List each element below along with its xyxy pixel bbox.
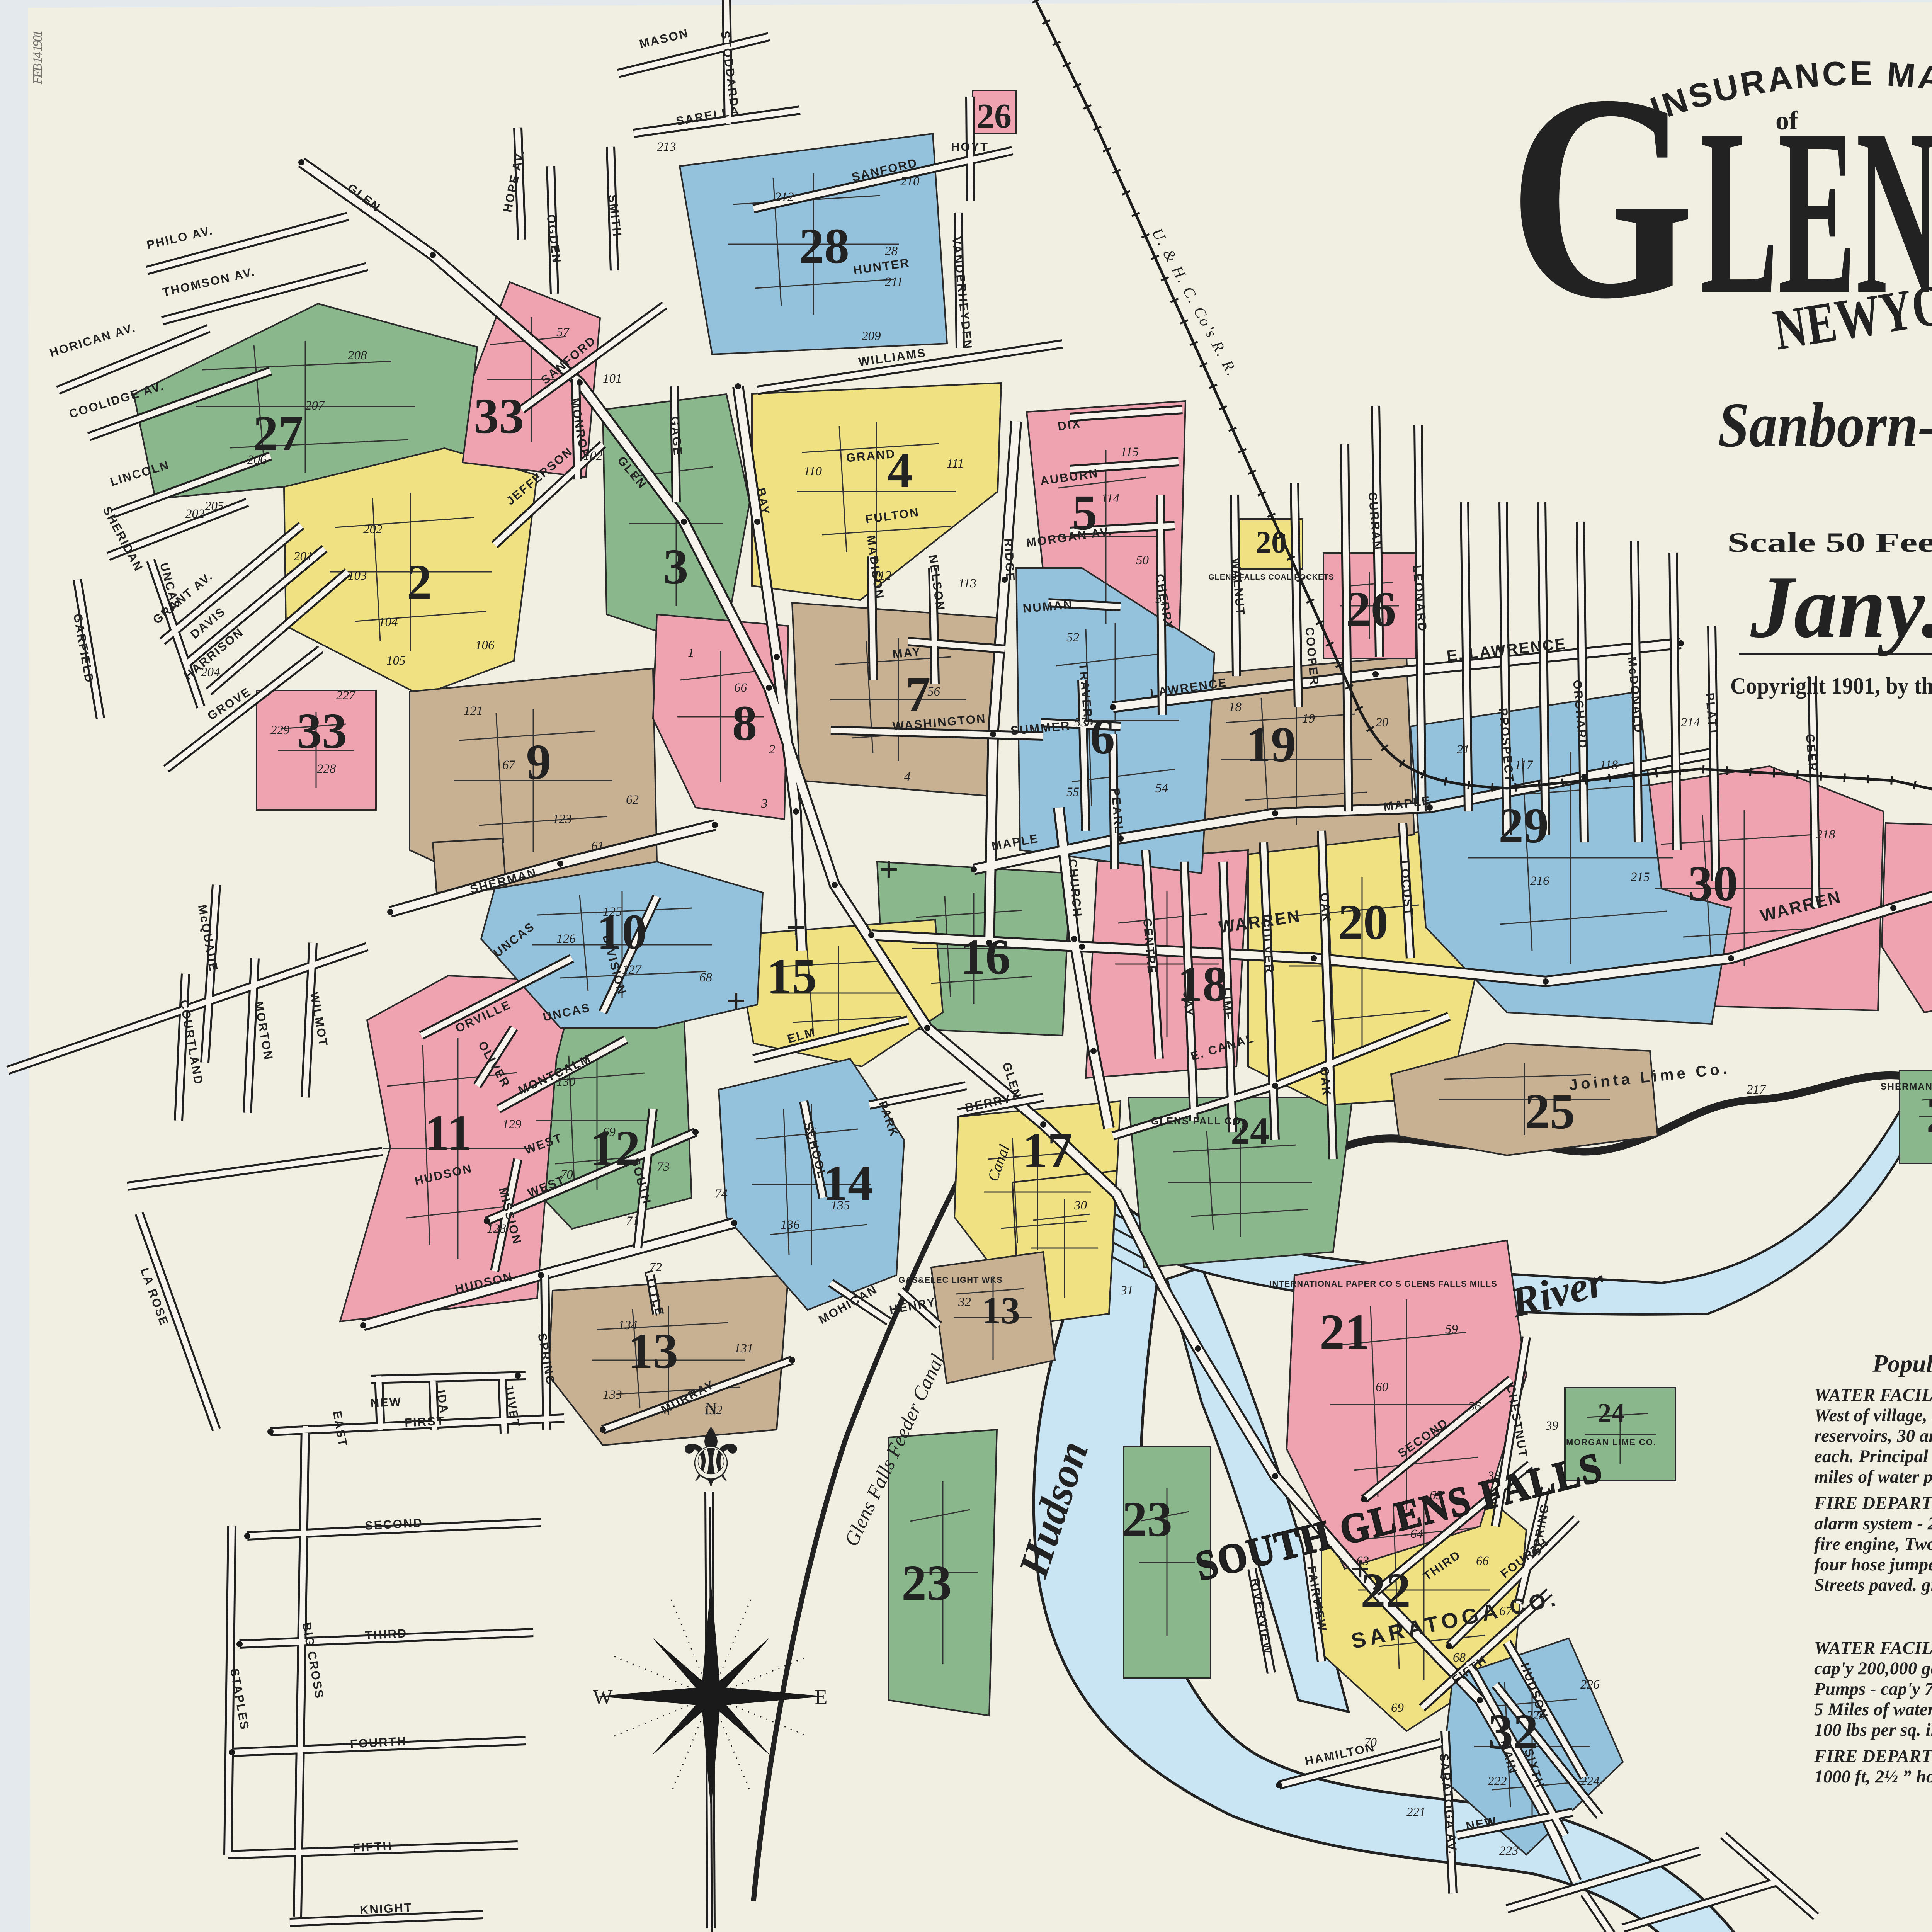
svg-text:Copyright 1901, by the Sanborn: Copyright 1901, by the Sanborn-Perris Ma… xyxy=(1730,673,1932,699)
svg-text:Jany.1901: Jany.1901 xyxy=(1750,558,1932,656)
svg-text:16: 16 xyxy=(960,929,1010,985)
svg-text:West of village, 254 ft. above: West of village, 254 ft. above Glen & Wa… xyxy=(1814,1405,1932,1425)
svg-text:SHERMAN LIME CO.: SHERMAN LIME CO. xyxy=(1881,1082,1932,1092)
svg-text:19: 19 xyxy=(1246,717,1296,772)
svg-text:125: 125 xyxy=(603,905,622,919)
svg-text:28: 28 xyxy=(799,218,849,274)
svg-text:223: 223 xyxy=(1499,1844,1519,1858)
svg-text:15: 15 xyxy=(767,949,817,1004)
svg-text:KNIGHT: KNIGHT xyxy=(359,1900,413,1917)
svg-text:WATER FACILITIES. Water suppl: WATER FACILITIES. Water supply from Huds… xyxy=(1814,1638,1932,1658)
svg-text:60: 60 xyxy=(1376,1380,1389,1394)
svg-text:130: 130 xyxy=(556,1075,576,1089)
svg-text:Scale 50 Feet to an Inch: Scale 50 Feet to an Inch xyxy=(1727,527,1932,558)
svg-text:215: 215 xyxy=(1631,870,1650,884)
svg-text:204: 204 xyxy=(201,665,220,679)
svg-text:31: 31 xyxy=(1120,1284,1133,1298)
svg-text:23: 23 xyxy=(901,1555,952,1611)
svg-text:INTERNATIONAL PAPER CO S GLENS: INTERNATIONAL PAPER CO S GLENS FALLS MIL… xyxy=(1269,1279,1497,1289)
svg-text:MAY: MAY xyxy=(892,645,922,661)
svg-text:9: 9 xyxy=(526,734,551,790)
svg-text:224: 224 xyxy=(1580,1774,1600,1788)
svg-text:four hose jumpers. 5000 ft. o: four hose jumpers. 5000 ft. of good hose… xyxy=(1814,1554,1932,1575)
svg-text:21: 21 xyxy=(1457,743,1469,757)
svg-text:33: 33 xyxy=(297,703,347,759)
svg-text:66: 66 xyxy=(1476,1554,1489,1568)
svg-text:115: 115 xyxy=(1121,445,1139,459)
svg-text:205: 205 xyxy=(205,499,224,513)
svg-text:225: 225 xyxy=(1526,1709,1546,1723)
svg-text:E: E xyxy=(815,1685,828,1709)
svg-text:114: 114 xyxy=(1101,492,1119,505)
svg-text:Streets paved. grades generall: Streets paved. grades generally level. xyxy=(1814,1575,1932,1595)
svg-text:209: 209 xyxy=(862,329,881,343)
svg-text:59: 59 xyxy=(1445,1322,1458,1336)
svg-text:229: 229 xyxy=(270,723,290,737)
svg-text:FIFTH: FIFTH xyxy=(352,1839,393,1854)
svg-text:135: 135 xyxy=(831,1199,850,1213)
svg-text:110: 110 xyxy=(804,464,822,478)
svg-text:129: 129 xyxy=(502,1117,522,1131)
svg-text:36: 36 xyxy=(1468,1400,1481,1413)
svg-text:4: 4 xyxy=(904,770,911,784)
svg-text:W: W xyxy=(593,1685,613,1709)
svg-text:217: 217 xyxy=(1747,1083,1766,1097)
svg-text:cap'y 200,000 galls, elevation: cap'y 200,000 galls, elevation, 65 ft. a… xyxy=(1814,1658,1932,1679)
svg-text:Sanborn-Perris: Sanborn-Perris xyxy=(1718,389,1932,460)
svg-text:68: 68 xyxy=(1453,1651,1466,1665)
svg-text:+: + xyxy=(1350,1550,1370,1588)
svg-text:117: 117 xyxy=(1515,758,1534,772)
svg-text:17: 17 xyxy=(1022,1122,1073,1178)
svg-text:FEB 14 1901: FEB 14 1901 xyxy=(31,30,45,85)
svg-text:21: 21 xyxy=(1320,1304,1370,1360)
svg-text:61: 61 xyxy=(591,839,604,853)
svg-text:105: 105 xyxy=(386,654,406,668)
svg-text:fire engine, Two hose wagons,: fire engine, Two hose wagons, One Babcoc… xyxy=(1814,1534,1932,1554)
svg-text:54: 54 xyxy=(1155,781,1168,795)
svg-text:+: + xyxy=(786,908,806,947)
svg-text:FIRE DEPARTMENT Partly paid.: FIRE DEPARTMENT Partly paid. 150 members… xyxy=(1814,1493,1932,1513)
svg-text:69: 69 xyxy=(1391,1701,1404,1715)
svg-text:23: 23 xyxy=(1122,1492,1172,1547)
svg-text:214: 214 xyxy=(1681,716,1700,730)
svg-text:201: 201 xyxy=(294,549,313,563)
svg-text:alarm system - 23 boxes. 4 Pa: alarm system - 23 boxes. 4 Paid men. One… xyxy=(1814,1514,1932,1534)
svg-text:2: 2 xyxy=(769,743,776,757)
svg-text:8: 8 xyxy=(732,696,757,751)
svg-text:11: 11 xyxy=(425,1105,472,1161)
svg-text:GLENS FALLS COAL POCKETS: GLENS FALLS COAL POCKETS xyxy=(1208,573,1334,582)
svg-text:+: + xyxy=(879,850,898,889)
svg-text:FIRST: FIRST xyxy=(404,1414,445,1429)
svg-text:103: 103 xyxy=(348,569,367,583)
svg-text:2: 2 xyxy=(407,554,432,610)
svg-text:56: 56 xyxy=(927,685,940,699)
svg-text:104: 104 xyxy=(379,615,398,629)
svg-text:20: 20 xyxy=(1338,895,1388,950)
svg-text:FIRE DEPARTMENT. Volunteer, 5: FIRE DEPARTMENT. Volunteer, 50 members. … xyxy=(1814,1746,1932,1766)
svg-text:24: 24 xyxy=(1926,1088,1932,1143)
svg-text:each. Principal water mains: each. Principal water mains 16”20” & 24”… xyxy=(1814,1446,1932,1466)
svg-text:13: 13 xyxy=(981,1289,1020,1332)
svg-text:26: 26 xyxy=(977,97,1012,135)
svg-text:67: 67 xyxy=(502,758,516,772)
svg-text:126: 126 xyxy=(556,932,576,946)
svg-text:miles of water pipes (2½ miles: miles of water pipes (2½ miles cement pi… xyxy=(1814,1467,1932,1487)
svg-text:28: 28 xyxy=(885,244,898,258)
svg-text:18: 18 xyxy=(1229,700,1242,714)
svg-text:128: 128 xyxy=(487,1222,506,1236)
svg-text:222: 222 xyxy=(1488,1774,1507,1788)
svg-text:211: 211 xyxy=(885,275,903,289)
svg-text:226: 226 xyxy=(1580,1678,1600,1692)
svg-text:218: 218 xyxy=(1816,828,1835,842)
svg-text:25: 25 xyxy=(1525,1084,1575,1139)
svg-text:RIDGE: RIDGE xyxy=(1002,538,1017,582)
svg-text:MORGAN LIME CO.: MORGAN LIME CO. xyxy=(1566,1437,1656,1447)
svg-text:Population 16000, Prev. Winds,: Population 16000, Prev. Winds, West xyxy=(1872,1350,1932,1377)
svg-text:7: 7 xyxy=(906,667,931,722)
svg-text:113: 113 xyxy=(958,577,976,590)
svg-text:WATER FACILITIES Gravity syst: WATER FACILITIES Gravity system of water… xyxy=(1814,1385,1932,1405)
svg-text:134: 134 xyxy=(618,1318,638,1332)
svg-text:102: 102 xyxy=(583,449,603,463)
svg-text:51: 51 xyxy=(1155,592,1168,606)
svg-text:29: 29 xyxy=(1498,798,1549,854)
svg-text:121: 121 xyxy=(464,704,483,718)
svg-text:GLENS FALL CO.: GLENS FALL CO. xyxy=(1151,1115,1245,1127)
svg-text:3: 3 xyxy=(663,539,689,595)
svg-text:118: 118 xyxy=(1600,758,1618,772)
svg-text:206: 206 xyxy=(247,453,267,467)
svg-text:reservoirs, 30 and 50 acres, c: reservoirs, 30 and 50 acres, capacity of… xyxy=(1814,1426,1932,1446)
svg-text:N: N xyxy=(705,1399,717,1418)
svg-text:26: 26 xyxy=(1346,582,1396,637)
svg-text:⚜: ⚜ xyxy=(675,1414,747,1503)
svg-text:LIME: LIME xyxy=(1219,987,1235,1022)
svg-text:212: 212 xyxy=(775,190,794,204)
svg-text:57: 57 xyxy=(556,325,570,339)
svg-text:OAK: OAK xyxy=(1318,892,1334,923)
svg-text:100 lbs per sq. inch.: 100 lbs per sq. inch. xyxy=(1814,1720,1932,1740)
svg-text:228: 228 xyxy=(317,762,336,776)
svg-text:3: 3 xyxy=(761,797,768,811)
svg-text:68: 68 xyxy=(699,971,713,985)
svg-text:OAK: OAK xyxy=(1318,1066,1334,1097)
svg-text:216: 216 xyxy=(1530,874,1549,888)
svg-text:202: 202 xyxy=(185,507,205,521)
svg-text:GAS&ELEC LIGHT WKS: GAS&ELEC LIGHT WKS xyxy=(898,1275,1003,1285)
svg-text:73: 73 xyxy=(657,1160,670,1174)
svg-text:1000 ft, 2½ ” hose.: 1000 ft, 2½ ” hose. xyxy=(1814,1767,1932,1787)
svg-text:1: 1 xyxy=(688,646,694,660)
svg-text:24: 24 xyxy=(1598,1398,1625,1428)
svg-text:50: 50 xyxy=(1136,553,1149,567)
svg-text:THIRD: THIRD xyxy=(365,1626,408,1642)
svg-text:JAY: JAY xyxy=(1180,991,1196,1017)
svg-text:5 Miles of water pipes 4” to: 5 Miles of water pipes 4” to 14” diam. 4… xyxy=(1814,1699,1932,1719)
svg-text:19: 19 xyxy=(1302,712,1315,726)
svg-text:136: 136 xyxy=(781,1218,800,1232)
svg-text:66: 66 xyxy=(734,681,747,695)
svg-text:76: 76 xyxy=(804,1125,817,1139)
svg-text:208: 208 xyxy=(348,349,367,362)
svg-text:131: 131 xyxy=(734,1342,753,1355)
svg-text:30: 30 xyxy=(1074,1199,1087,1213)
svg-text:NEW: NEW xyxy=(370,1395,402,1410)
svg-text:70: 70 xyxy=(1364,1736,1377,1750)
svg-text:111: 111 xyxy=(947,457,964,471)
svg-text:74: 74 xyxy=(715,1187,728,1201)
svg-text:69: 69 xyxy=(603,1125,616,1139)
svg-text:207: 207 xyxy=(305,399,325,413)
svg-text:71: 71 xyxy=(626,1214,639,1228)
svg-text:72: 72 xyxy=(649,1260,662,1274)
svg-text:221: 221 xyxy=(1406,1805,1426,1819)
svg-text:+: + xyxy=(726,982,746,1020)
svg-text:37: 37 xyxy=(1429,1427,1443,1440)
svg-text:G: G xyxy=(1509,34,1694,359)
svg-text:70: 70 xyxy=(560,1168,573,1182)
svg-text:52: 52 xyxy=(1066,631,1079,645)
svg-text:210: 210 xyxy=(900,175,920,189)
svg-text:112: 112 xyxy=(873,569,891,583)
svg-text:20: 20 xyxy=(1256,526,1287,560)
svg-text:67: 67 xyxy=(1499,1604,1513,1618)
svg-text:53: 53 xyxy=(1074,716,1087,730)
svg-text:101: 101 xyxy=(603,372,622,386)
svg-text:106: 106 xyxy=(475,638,495,652)
svg-text:213: 213 xyxy=(657,140,676,154)
svg-text:39: 39 xyxy=(1545,1419,1558,1433)
svg-text:20: 20 xyxy=(1376,716,1389,730)
svg-text:30: 30 xyxy=(1688,856,1738,912)
svg-text:227: 227 xyxy=(336,689,356,702)
svg-text:HOYT: HOYT xyxy=(951,140,989,153)
svg-text:123: 123 xyxy=(553,812,572,826)
svg-text:55: 55 xyxy=(1066,785,1079,799)
svg-text:32: 32 xyxy=(958,1295,971,1309)
svg-text:33: 33 xyxy=(474,388,524,444)
svg-text:127: 127 xyxy=(622,963,642,977)
svg-text:133: 133 xyxy=(603,1388,622,1402)
svg-text:62: 62 xyxy=(626,793,639,807)
svg-text:Pumps - cap'y 750,000 galls. p: Pumps - cap'y 750,000 galls. per 24 hour… xyxy=(1814,1679,1932,1699)
svg-text:202: 202 xyxy=(363,522,383,536)
